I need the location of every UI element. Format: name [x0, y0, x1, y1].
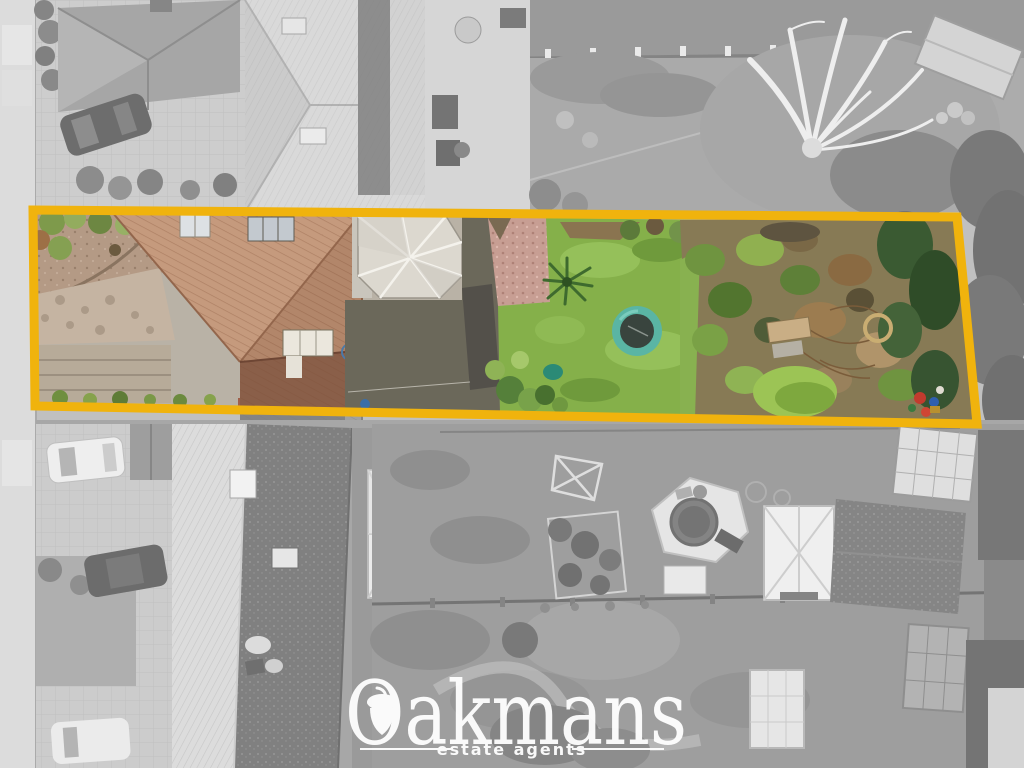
logo-tagline: estate agents [437, 740, 588, 759]
aerial-photo-canvas: Oakmans estate agents [0, 0, 1024, 768]
aerial-photo: Oakmans estate agents [0, 0, 1024, 768]
watermark-logo: Oakmans estate agents [345, 662, 687, 765]
